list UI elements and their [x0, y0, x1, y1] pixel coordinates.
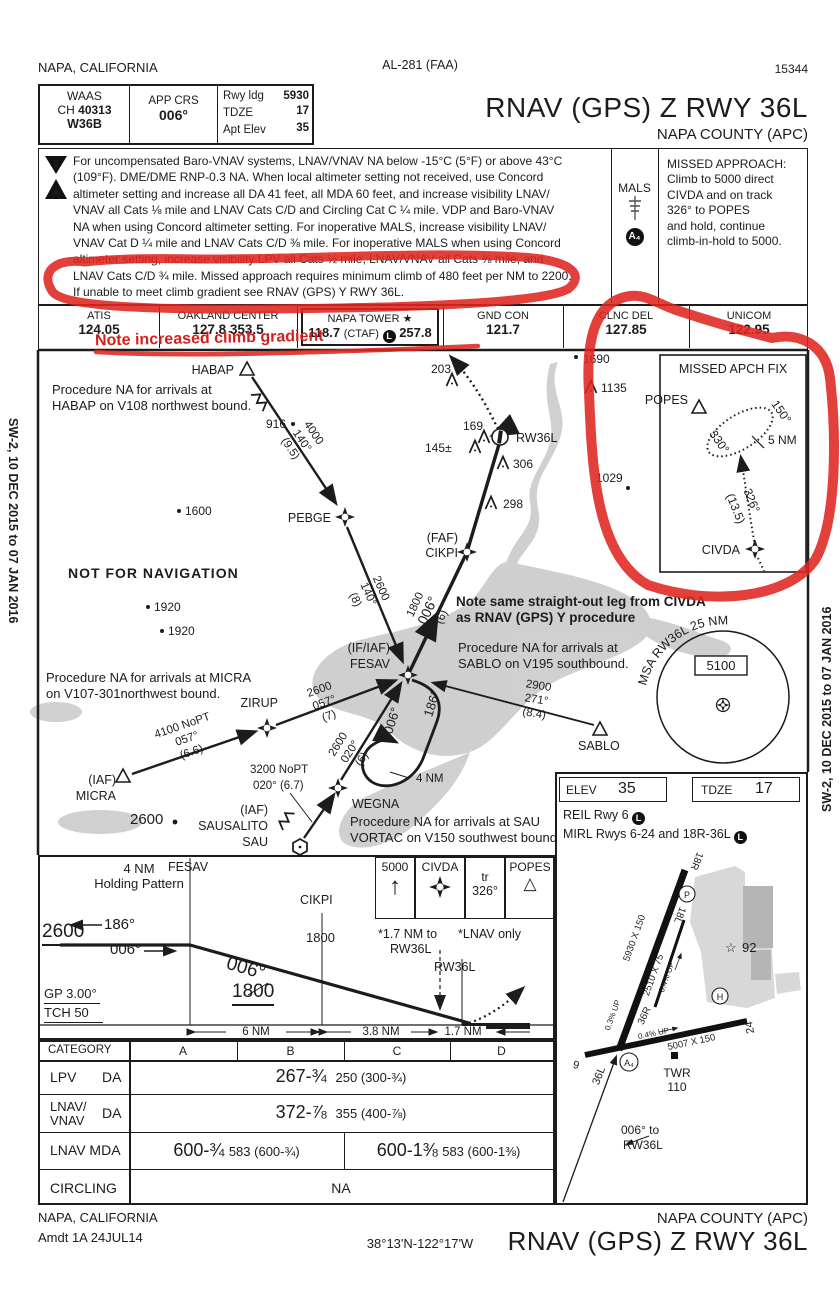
svg-text:306: 306 [513, 457, 533, 471]
missed-line: 326° to POPES [667, 203, 805, 218]
missed-apch-fix-inset: MISSED APCH FIX POPES 150° 330° 5 NM 326… [645, 355, 806, 572]
note-line: VNAV all Cats ⅛ mile and LNAV Cats C/D a… [73, 202, 609, 218]
svg-text:020° (6.7): 020° (6.7) [253, 780, 304, 792]
tdze-label: TDZE [223, 107, 253, 119]
approach-plate-page: NAPA, CALIFORNIA AL-281 (FAA) 15344 WAAS… [0, 0, 840, 1289]
app-crs-value: 006° [130, 107, 217, 123]
svg-text:(IAF): (IAF) [88, 773, 116, 787]
field-elev-value: 92 [742, 940, 756, 955]
note-line: For uncompensated Baro-VNAV systems, LNA… [73, 153, 609, 169]
city-state: NAPA, CALIFORNIA [38, 60, 158, 75]
glidepath-angle: GP 3.00° [44, 986, 100, 1004]
tdze-value: 17 [296, 103, 309, 120]
sau-vortac-symbol [293, 839, 307, 855]
svg-text:1920: 1920 [168, 624, 195, 638]
alternate-icon-letter: A [52, 187, 60, 199]
svg-text:169: 169 [463, 419, 483, 433]
lnav-mda-label: LNAV MDA [50, 1142, 121, 1158]
vdp-note-2: RW36L [390, 942, 431, 956]
svg-text:SAUSALITO: SAUSALITO [198, 819, 268, 833]
svg-text:ZIRUP: ZIRUP [241, 696, 279, 710]
svg-text:Procedure NA for arrivals at S: Procedure NA for arrivals at SAU [350, 814, 540, 829]
center-label: OAKLAND CENTER [159, 310, 297, 322]
profile-rw36l: RW36L [434, 960, 475, 974]
procedure-title: RNAV (GPS) Z RWY 36L [388, 92, 808, 124]
popes-label: POPES [645, 393, 688, 407]
apt-elev-value: 35 [296, 120, 309, 137]
profile-cikpi: CIKPI [300, 893, 333, 907]
runway-data-cell: Rwy ldg5930 TDZE17 Apt Elev35 [218, 86, 314, 143]
civda-star-icon [427, 874, 453, 900]
svg-text:SAU: SAU [242, 835, 268, 849]
tower-star: ★ [403, 313, 413, 325]
svg-text:271°: 271° [524, 692, 549, 708]
terminal-building [743, 886, 773, 948]
missed-approach-text: MISSED APPROACH: Climb to 5000 direct CI… [667, 157, 805, 249]
svg-text:3200 NoPT: 3200 NoPT [250, 764, 308, 776]
svg-text:145±: 145± [425, 441, 452, 455]
pebge-symbol [335, 507, 355, 527]
svg-text:Procedure NA for arrivals at M: Procedure NA for arrivals at MICRA [46, 670, 252, 685]
circling-minimums: NA [129, 1180, 553, 1196]
msa-altitude: 5100 [707, 658, 736, 673]
vdp-arrow [434, 995, 446, 1011]
zirup-symbol [257, 718, 277, 738]
tower-ctaf: (CTAF) [344, 328, 379, 340]
svg-text:Procedure NA for arrivals at: Procedure NA for arrivals at [458, 640, 618, 655]
red-note-line2: as RNAV (GPS) Y procedure [456, 610, 636, 625]
missed-icon-boxes: 5000 ↑ CIVDA tr 326° POPES △ [375, 857, 555, 919]
svg-text:(IAF): (IAF) [240, 803, 268, 817]
profile-fesav: FESAV [168, 860, 208, 874]
missed-line: and hold, continue [667, 219, 805, 234]
svg-text:(IF/IAF): (IF/IAF) [348, 641, 390, 655]
svg-text:PEBGE: PEBGE [288, 511, 331, 525]
lpv-minimums: 267-¾ 250 (300-¾) [129, 1066, 553, 1087]
field-elev-star-icon: ☆ [725, 940, 737, 955]
right-edition-date: SW-2, 10 DEC 2015 to 07 JAN 2016 [820, 522, 834, 812]
approach-lights-icon [625, 195, 645, 221]
svg-text:HABAP: HABAP [192, 363, 234, 377]
ground-label: GND CON [443, 310, 563, 322]
al-number: AL-281 (FAA) [340, 58, 500, 72]
profile-altitude-2600: 2600 [42, 921, 84, 946]
footer-city: NAPA, CALIFORNIA [38, 1210, 158, 1225]
clearance-label: CLNC DEL [563, 310, 689, 322]
svg-text:36R: 36R [636, 1005, 654, 1026]
sablo-symbol [593, 722, 607, 735]
lnav-mda-ab: 600-¾ 583 (600-¾) [129, 1140, 344, 1161]
note-line: altimeter setting, increase visibility L… [73, 251, 609, 267]
svg-text:0.3% UP: 0.3% UP [603, 999, 622, 1032]
col-b: B [237, 1044, 344, 1058]
rw36l-symbol [492, 429, 508, 445]
clearance-freq: 127.85 [563, 322, 689, 337]
mals-divider [658, 149, 659, 303]
notes-box: T A For uncompensated Baro-VNAV systems,… [38, 148, 808, 305]
footer-title: RNAV (GPS) Z RWY 36L [388, 1226, 808, 1257]
tower-freq-post: 257.8 [399, 325, 432, 340]
lpv-label: LPV [50, 1069, 76, 1085]
app-crs-label: APP CRS [130, 95, 217, 107]
mals-label: MALS [611, 181, 658, 195]
tower-label: TWR [663, 1066, 691, 1080]
tch-value: TCH 50 [44, 1005, 103, 1023]
approach-course-note-2: RW36L [623, 1138, 663, 1152]
waas-channel-cell: WAAS CH 40313 W36B [40, 86, 130, 143]
missed-line: MISSED APPROACH: [667, 157, 805, 172]
profile-missed-curve [469, 989, 522, 1023]
dist-6nm: 6 NM [226, 1026, 286, 1038]
ch-value: 40313 [78, 103, 111, 117]
micra-symbol [116, 769, 130, 782]
note-line: VNAV Cat D ¼ mile and LNAV Cats C/D ⅜ mi… [73, 235, 609, 251]
svg-text:WEGNA: WEGNA [352, 797, 400, 811]
col-c: C [344, 1044, 450, 1058]
unicom-label: UNICOM [689, 310, 809, 322]
svg-text:VORTAC on V150 southwest bound: VORTAC on V150 southwest bound. [350, 830, 561, 845]
svg-text:18R: 18R [688, 850, 705, 871]
note-line: altimeter setting and increase all DA 41… [73, 186, 609, 202]
hold-leg-length: 5 NM [768, 433, 797, 447]
missed-line: CIVDA and on track [667, 188, 805, 203]
briefing-strip: WAAS CH 40313 W36B APP CRS 006° Rwy ldg5… [38, 84, 314, 145]
cikpi-symbol [457, 542, 477, 562]
svg-text:24: 24 [743, 1020, 757, 1034]
lnav-vnav-minimums: 372-⅞ 355 (400-⅞) [129, 1102, 553, 1123]
svg-text:916: 916 [266, 417, 286, 431]
lnav-vnav-da: DA [102, 1105, 121, 1121]
svg-text:FESAV: FESAV [350, 657, 391, 671]
missed-line: climb-in-hold to 5000. [667, 234, 805, 249]
inset-title: MISSED APCH FIX [679, 362, 788, 376]
svg-text:RW36L: RW36L [516, 431, 558, 445]
lpv-da: DA [102, 1069, 121, 1085]
up-arrow-icon: ↑ [376, 874, 414, 900]
missed-box-civda: CIVDA [415, 857, 465, 919]
missed-box-track: tr 326° [465, 857, 505, 919]
svg-text:CIKPI: CIKPI [425, 546, 458, 560]
svg-text:5930 X 150: 5930 X 150 [621, 913, 648, 962]
svg-text:6: 6 [572, 1057, 580, 1070]
svg-text:1690: 1690 [583, 352, 610, 366]
civda-label: CIVDA [702, 543, 741, 557]
takeoff-icon-letter: T [53, 158, 60, 170]
note-line: NA when using Concord altimeter setting.… [73, 219, 609, 235]
vdp-note-1: *1.7 NM to [378, 927, 437, 941]
dist-17nm: 1.7 NM [440, 1026, 486, 1038]
lnav-mda-cd: 600-1⅜ 583 (600-1⅜) [344, 1140, 553, 1161]
not-for-navigation: NOT FOR NAVIGATION [68, 565, 239, 581]
svg-text:(FAF): (FAF) [427, 531, 458, 545]
atis-label: ATIS [39, 310, 159, 322]
svg-text:(8): (8) [347, 591, 364, 609]
note-line: (109°F). DME/DME RNP-0.3 NA. When local … [73, 169, 609, 185]
lnav-vnav-label: LNAV/VNAV [50, 1100, 87, 1128]
missed-box-popes: POPES △ [505, 857, 555, 919]
svg-text:P: P [684, 890, 690, 900]
profile-stepdown-altitude: 1800 [232, 981, 274, 1006]
plate-serial: 15344 [730, 62, 808, 76]
lnav-only-note: *LNAV only [458, 927, 521, 941]
red-note-line1: Note same straight-out leg from CIVDA [456, 594, 706, 609]
clearance-cell: CLNC DEL 127.85 [563, 310, 689, 337]
wegna-symbol [328, 778, 348, 798]
svg-text:SABLO on V195 southbound.: SABLO on V195 southbound. [458, 656, 629, 671]
svg-text:(7): (7) [320, 708, 337, 724]
svg-text:1029: 1029 [596, 471, 623, 485]
profile-inbound: 006° [110, 941, 141, 958]
rwy-ldg-label: Rwy ldg [223, 90, 264, 102]
svg-text:HABAP on V108 northwest bound.: HABAP on V108 northwest bound. [52, 398, 251, 413]
mals-cell: MALS A₄ [611, 181, 658, 246]
svg-text:2600: 2600 [130, 811, 163, 828]
footer-airport: NAPA COUNTY (APC) [508, 1210, 808, 1227]
habap-symbol [240, 362, 254, 375]
svg-text:on V107-301northwest bound.: on V107-301northwest bound. [46, 686, 220, 701]
apt-elev-label: Apt Elev [223, 124, 266, 136]
svg-text:H: H [717, 992, 724, 1002]
final-approach-line [563, 1057, 616, 1202]
unicom-freq: 122.95 [689, 322, 809, 337]
lighting-l-icon: L [383, 330, 396, 343]
profile-cikpi-altitude: 1800 [306, 930, 335, 945]
ground-cell: GND CON 121.7 [443, 310, 563, 337]
footer-amdt: Amdt 1A 24JUL14 [38, 1230, 143, 1245]
svg-text:1135: 1135 [601, 381, 627, 395]
airport-sketch: ELEV 35 TDZE 17 REIL Rwy 6 L MIRL Rwys 6… [555, 772, 808, 1205]
profile-outbound: 186° [104, 916, 135, 933]
col-category: CATEGORY [48, 1044, 111, 1056]
minimums-table: CATEGORY A B C D LPV DA 267-¾ 250 (300-¾… [38, 1040, 555, 1205]
dist-38nm: 3.8 NM [351, 1026, 411, 1038]
svg-text:4 NM: 4 NM [416, 773, 443, 785]
tower-square [671, 1052, 678, 1059]
missed-line: Climb to 5000 direct [667, 172, 805, 187]
svg-text:Procedure NA for arrivals at: Procedure NA for arrivals at [52, 382, 212, 397]
svg-text:36L: 36L [590, 1065, 608, 1087]
circling-label: CIRCLING [50, 1180, 117, 1196]
svg-text:203: 203 [431, 362, 451, 376]
app-crs-cell: APP CRS 006° [130, 86, 218, 143]
procedure-notes: For uncompensated Baro-VNAV systems, LNA… [73, 153, 609, 301]
svg-text:1920: 1920 [154, 600, 181, 614]
unicom-cell: UNICOM 122.95 [689, 310, 809, 337]
svg-text:MICRA: MICRA [76, 789, 117, 803]
ground-freq: 121.7 [443, 322, 563, 337]
svg-text:298: 298 [503, 497, 523, 511]
tower-freq: 110 [667, 1080, 686, 1094]
note-line: LNAV Cats C/D ¾ mile. Missed approach re… [73, 268, 609, 284]
col-d: D [450, 1044, 553, 1058]
waas-id: W36B [40, 117, 129, 131]
col-a: A [129, 1044, 237, 1058]
popes-triangle-icon: △ [506, 874, 554, 894]
a4-badge: A₄ [626, 228, 644, 246]
approach-course-note-1: 006° to [621, 1123, 659, 1137]
note-line: If unable to meet climb gradient see RNA… [73, 284, 609, 300]
takeoff-alternate-icons: T A [44, 155, 68, 207]
ch-label: CH [57, 103, 74, 117]
left-edition-date: SW-2, 10 DEC 2015 to 07 JAN 2016 [6, 418, 20, 708]
svg-text:A₄: A₄ [624, 1058, 634, 1068]
svg-text:SABLO: SABLO [578, 739, 620, 753]
svg-text:(8.4): (8.4) [522, 706, 547, 722]
airport-name: NAPA COUNTY (APC) [388, 126, 808, 143]
runway-diagram: 18R 18L 36R 36L 6 24 5930 X 150 2510 X 7… [557, 774, 806, 1203]
missed-box-climb: 5000 ↑ [375, 857, 415, 919]
tower-label: NAPA TOWER [327, 313, 399, 325]
waas-label: WAAS [40, 89, 129, 103]
svg-text:1600: 1600 [185, 504, 212, 518]
